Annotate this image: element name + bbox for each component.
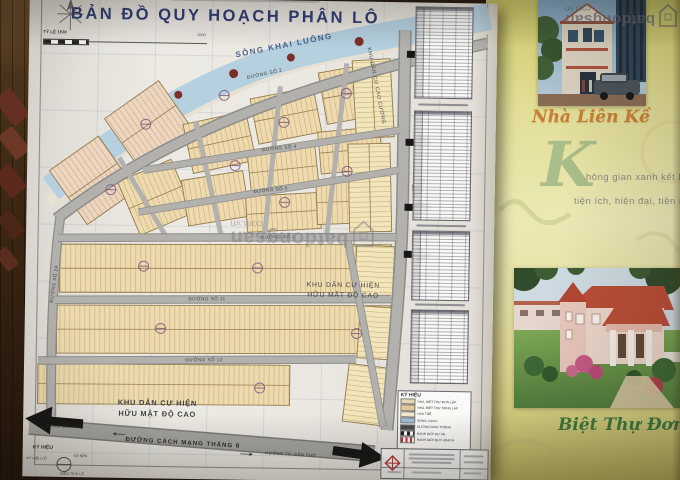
mini-legend-lot-area: DIỆN TÍCH LÔ xyxy=(60,472,84,476)
area-label-line: HỮU MẬT ĐỘ CAO xyxy=(118,408,197,420)
floor-tile xyxy=(0,210,25,240)
statistics-table xyxy=(414,6,473,99)
scale-bar xyxy=(43,39,89,45)
area-label-existing-left: KHU DÂN CƯ HIỆN HỮU MẬT ĐỘ CAO xyxy=(118,397,198,420)
page-edge-shade xyxy=(672,0,680,480)
lot-symbol xyxy=(56,457,71,472)
legend-label: NHÀ TRẺ xyxy=(417,413,431,417)
floor-tile xyxy=(0,126,30,161)
legend-label: ĐƯỜNG GIAO THÔNG xyxy=(417,425,451,429)
right-arrow-icon: → xyxy=(236,444,258,460)
photo-scene: batdongsan com.vn Nhà Liên Kề K hông gia… xyxy=(0,0,680,480)
domain-text: com.vn xyxy=(565,5,591,13)
card1-title: Nhà Liên Kề xyxy=(532,107,650,127)
tagline-line1: hông gian xanh kết hợp hài hòa xyxy=(586,172,680,183)
road-label-11: ĐƯỜNG SỐ 11 xyxy=(188,297,225,302)
area-label-existing-right: KHU DÂN CƯ HIỆN HỮU MẬT ĐỘ CAO xyxy=(306,281,380,303)
brand-text: batdongsan xyxy=(230,228,349,250)
brand-stamp-icon xyxy=(384,455,400,471)
tagline-line2: tiện ích, hiện đại, tiện nghi và gầ xyxy=(574,196,680,207)
legend-swatch xyxy=(400,437,415,443)
domain-text: com.vn xyxy=(230,218,262,229)
floor-tile xyxy=(0,246,19,272)
mini-legend-lot-code: KÝ HIỆU LÔ xyxy=(27,456,47,460)
brand-text: batdongsan xyxy=(565,13,655,28)
scale-end-label: 1000 xyxy=(197,33,206,37)
legend-title: KÝ HIỆU xyxy=(401,392,435,396)
legend-label: RANH GIỚI QUY HOẠCH xyxy=(417,438,454,442)
floor-tile xyxy=(0,163,27,199)
legend-item: RANH GIỚI QUY HOẠCH xyxy=(400,437,468,444)
scale-label: TỶ LỆ 1KM xyxy=(43,30,67,35)
drop-cap: K xyxy=(541,128,595,201)
map-sheet: TỶ LỆ 1KM 1000 BẢN ĐỒ QUY HOẠCH PHÂN LÔ … xyxy=(22,0,497,480)
legend-label: NHÀ, BIỆT THỰ ĐƠN LẬP xyxy=(417,400,456,404)
statistics-table xyxy=(411,230,470,301)
mini-legend-title: KÝ HIỆU xyxy=(33,444,53,450)
villa-photo xyxy=(514,268,680,408)
area-label-line: HỮU MẬT ĐỘ CAO xyxy=(306,291,379,302)
card2-title: Biệt Thự Đơn L xyxy=(558,415,680,435)
legend-label: SÔNG, RẠCH xyxy=(417,419,437,423)
mini-legend-lot-count: SỐ NỀN xyxy=(74,454,88,458)
shield-icon xyxy=(351,220,375,248)
mini-legend: KÝ HIỆU KÝ HIỆU LÔ SỐ NỀN DIỆN TÍCH LÔ xyxy=(24,444,134,478)
brochure-panel: batdongsan com.vn Nhà Liên Kề K hông gia… xyxy=(486,0,680,480)
watermark-batdongsan: batdongsan com.vn xyxy=(565,4,678,28)
legend-label: NHÀ, BIỆT THỰ SONG LẬP xyxy=(417,406,458,410)
floor-tile xyxy=(0,87,30,126)
road-label-12: ĐƯỜNG SỐ 12 xyxy=(185,358,222,363)
legend-label: RANH GIỚI DỰ ÁN xyxy=(417,432,445,436)
legend-box: KÝ HIỆU NHÀ, BIỆT THỰ ĐƠN LẬP NHÀ, BIỆT … xyxy=(397,390,472,453)
statistics-table xyxy=(410,309,469,384)
watermark-batdongsan: batdongsan com.vn xyxy=(230,218,376,250)
statistics-table xyxy=(412,110,472,221)
